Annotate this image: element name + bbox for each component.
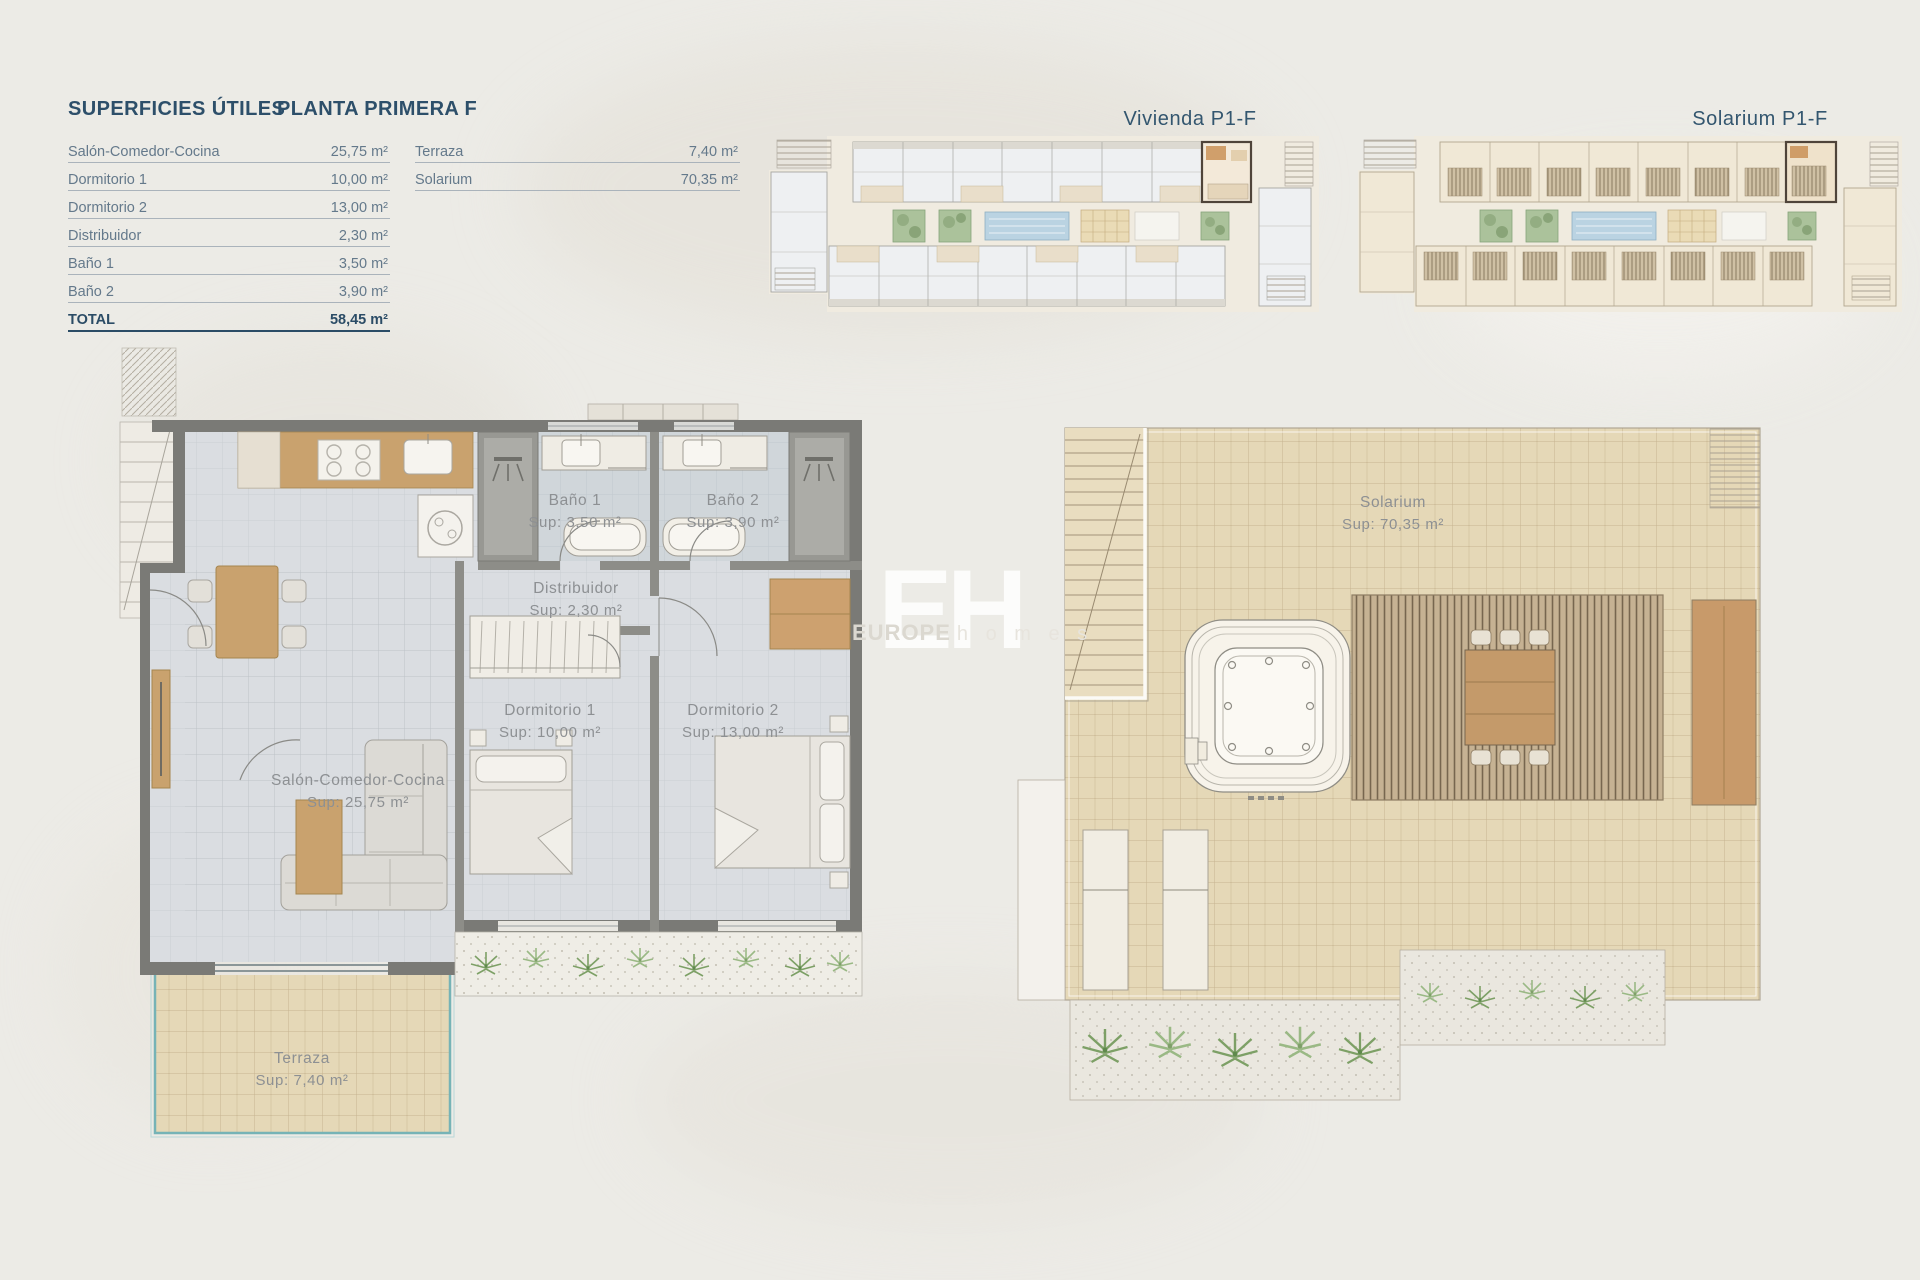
room-label-banyo2: Baño 2 Sup: 3,90 m² xyxy=(673,490,793,534)
room-area: Sup: 70,35 m² xyxy=(1293,514,1493,536)
room-label-salon: Salón-Comedor-Cocina Sup: 25,75 m² xyxy=(238,770,478,814)
row-label: Terraza xyxy=(415,144,463,160)
table-row: Dormitorio 213,00 m² xyxy=(68,194,390,219)
row-value: 3,50 m² xyxy=(339,256,388,272)
secondary-surfaces-table: Terraza7,40 m² Solarium70,35 m² xyxy=(415,138,740,194)
row-value: 70,35 m² xyxy=(681,172,738,188)
row-value: 3,90 m² xyxy=(339,284,388,300)
row-label: Dormitorio 1 xyxy=(68,172,147,188)
row-value: 2,30 m² xyxy=(339,228,388,244)
row-label: Baño 1 xyxy=(68,256,114,272)
room-name: Salón-Comedor-Cocina xyxy=(238,770,478,792)
room-name: Solarium xyxy=(1293,492,1493,514)
room-area: Sup: 2,30 m² xyxy=(496,600,656,622)
wardrobe-1 xyxy=(470,616,620,678)
surfaces-table: Salón-Comedor-Cocina25,75 m² Dormitorio … xyxy=(68,138,390,335)
plan-sheet-page: { "header": { "title_left": "SUPERFICIES… xyxy=(0,0,1920,1280)
kitchen-counter xyxy=(238,432,473,488)
table-total-row: TOTAL58,45 m² xyxy=(68,306,390,332)
table-row: Salón-Comedor-Cocina25,75 m² xyxy=(68,138,390,163)
row-label: Solarium xyxy=(415,172,472,188)
row-value: 10,00 m² xyxy=(331,172,388,188)
tv-sideboard xyxy=(152,670,170,788)
row-label: Baño 2 xyxy=(68,284,114,300)
room-label-distribuidor: Distribuidor Sup: 2,30 m² xyxy=(496,578,656,622)
table-row: Baño 13,50 m² xyxy=(68,250,390,275)
total-label: TOTAL xyxy=(68,312,115,328)
terrace-slider-window xyxy=(215,965,388,971)
room-area: Sup: 7,40 m² xyxy=(202,1070,402,1092)
wardrobe-2 xyxy=(770,579,850,649)
row-value: 25,75 m² xyxy=(331,144,388,160)
planter-strip xyxy=(455,932,862,996)
row-value: 13,00 m² xyxy=(331,200,388,216)
row-label: Salón-Comedor-Cocina xyxy=(68,144,220,160)
plant-bed-left xyxy=(1070,1000,1400,1100)
solarium-stair xyxy=(1065,428,1148,701)
table-row: Distribuidor2,30 m² xyxy=(68,222,390,247)
kitchen-sink-unit xyxy=(418,495,473,557)
jacuzzi xyxy=(1185,620,1350,800)
surfaces-title: SUPERFICIES ÚTILES xyxy=(68,98,285,121)
deck xyxy=(1352,595,1663,800)
table-header: SUPERFICIES ÚTILES PLANTA PRIMERA F xyxy=(68,98,628,124)
row-label: Distribuidor xyxy=(68,228,141,244)
plant-bed-right xyxy=(1400,950,1665,1045)
room-label-terraza: Terraza Sup: 7,40 m² xyxy=(202,1048,402,1092)
room-name: Terraza xyxy=(202,1048,402,1070)
room-name: Baño 2 xyxy=(673,490,793,512)
room-name: Distribuidor xyxy=(496,578,656,600)
watermark-initials: EH xyxy=(878,554,1022,666)
room-area: Sup: 3,90 m² xyxy=(673,512,793,534)
table-row: Dormitorio 110,00 m² xyxy=(68,166,390,191)
room-label-dormitorio1: Dormitorio 1 Sup: 10,00 m² xyxy=(470,700,630,744)
row-value: 7,40 m² xyxy=(689,144,738,160)
total-value: 58,45 m² xyxy=(330,312,388,328)
room-name: Baño 1 xyxy=(515,490,635,512)
table-row: Solarium70,35 m² xyxy=(415,166,740,191)
room-name: Dormitorio 1 xyxy=(470,700,630,722)
room-area: Sup: 10,00 m² xyxy=(470,722,630,744)
lower-terrace xyxy=(1018,780,1065,1000)
room-name: Dormitorio 2 xyxy=(653,700,813,722)
shower-closet-2 xyxy=(789,432,850,561)
table-row: Baño 23,90 m² xyxy=(68,278,390,303)
room-label-solarium: Solarium Sup: 70,35 m² xyxy=(1293,492,1493,536)
room-area: Sup: 13,00 m² xyxy=(653,722,813,744)
solarium-overview-plan xyxy=(1358,126,1908,322)
vivienda-overview-plan xyxy=(765,126,1325,322)
bed-dormitorio1 xyxy=(470,730,572,874)
room-area: Sup: 25,75 m² xyxy=(238,792,478,814)
floor-title: PLANTA PRIMERA F xyxy=(277,98,477,121)
room-label-dormitorio2: Dormitorio 2 Sup: 13,00 m² xyxy=(653,700,813,744)
table-row: Terraza7,40 m² xyxy=(415,138,740,163)
room-label-banyo1: Baño 1 Sup: 3,50 m² xyxy=(515,490,635,534)
room-area: Sup: 3,50 m² xyxy=(515,512,635,534)
row-label: Dormitorio 2 xyxy=(68,200,147,216)
